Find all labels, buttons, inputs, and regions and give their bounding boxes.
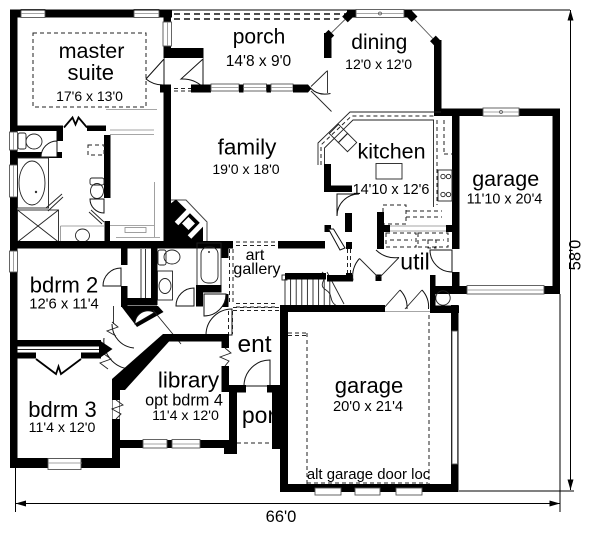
- svg-text:dining: dining: [351, 31, 407, 54]
- svg-text:util: util: [400, 249, 429, 275]
- svg-text:porch: porch: [233, 26, 286, 49]
- svg-text:12'6 x 11'4: 12'6 x 11'4: [29, 297, 99, 313]
- svg-text:19'0 x 18'0: 19'0 x 18'0: [212, 161, 279, 177]
- svg-text:garage: garage: [335, 373, 404, 398]
- svg-text:family: family: [218, 135, 278, 160]
- svg-text:kitchen: kitchen: [357, 140, 425, 164]
- svg-text:58'0: 58'0: [567, 240, 585, 271]
- svg-text:11'10 x 20'4: 11'10 x 20'4: [467, 192, 543, 208]
- svg-text:gallery: gallery: [233, 261, 280, 278]
- svg-text:ent: ent: [237, 331, 271, 358]
- svg-text:17'6 x 13'0: 17'6 x 13'0: [56, 88, 123, 104]
- svg-text:por: por: [242, 402, 276, 428]
- svg-text:alt garage door loc: alt garage door loc: [307, 467, 431, 483]
- svg-text:66'0: 66'0: [266, 508, 297, 526]
- svg-text:opt bdrm 4: opt bdrm 4: [145, 392, 223, 410]
- svg-text:12'0 x 12'0: 12'0 x 12'0: [345, 56, 412, 72]
- svg-text:library: library: [158, 368, 220, 393]
- svg-text:bdrm 2: bdrm 2: [30, 273, 98, 298]
- svg-text:14'8 x 9'0: 14'8 x 9'0: [226, 53, 292, 70]
- svg-text:garage: garage: [472, 167, 539, 191]
- svg-text:20'0 x 21'4: 20'0 x 21'4: [333, 399, 403, 415]
- svg-text:11'4 x 12'0: 11'4 x 12'0: [29, 420, 96, 436]
- svg-text:14'10 x 12'6: 14'10 x 12'6: [353, 182, 430, 198]
- svg-text:bdrm 3: bdrm 3: [28, 397, 96, 422]
- svg-text:11'4 x 12'0: 11'4 x 12'0: [152, 408, 219, 424]
- svg-text:suite: suite: [67, 60, 113, 85]
